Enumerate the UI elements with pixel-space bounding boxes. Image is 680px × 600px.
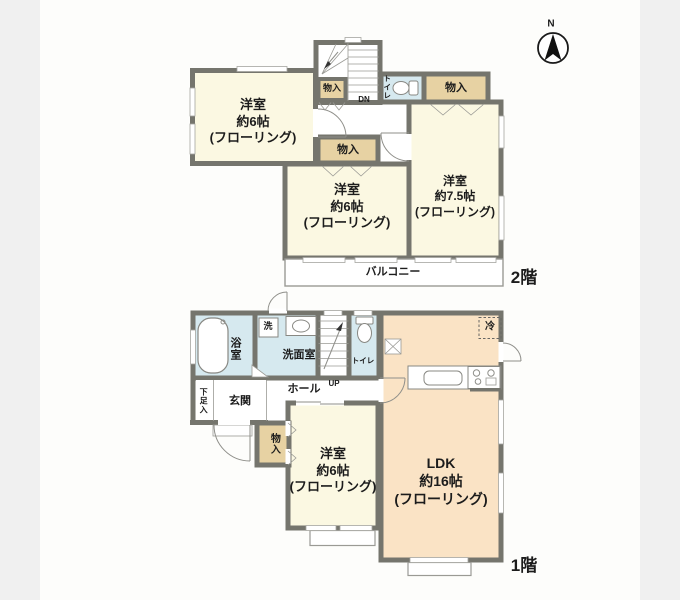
f1-laundry-pan-label: 洗 xyxy=(263,321,272,333)
floor1-plan xyxy=(190,292,521,576)
f2-room-s-label: 洋室 約6帖 (フローリング) xyxy=(304,182,391,232)
f1-hall-label: ホール xyxy=(288,382,321,396)
compass-n-label: N xyxy=(547,19,554,32)
f1-floor-hatch xyxy=(385,339,401,354)
f1-bath-label: 浴室 xyxy=(228,337,242,361)
f2-closet-ne-label: 物入 xyxy=(445,81,467,95)
floorplan-page: N 洋室 約6帖 (フローリング) 洋室 約6帖 (フローリング) 洋室 約7.… xyxy=(0,0,680,600)
f1-fridge-label: 冷 xyxy=(485,322,495,335)
f1-shoe-cabinet-label: 下足入 xyxy=(198,388,208,415)
f2-toilet-label: トイレ xyxy=(382,74,392,100)
f2-dn-label: DN xyxy=(358,95,370,105)
f2-stair-top-window xyxy=(345,38,361,43)
f1-up-label: UP xyxy=(328,379,339,389)
f1-terrace-ldk xyxy=(408,563,471,576)
f1-washroom-label: 洗面室 xyxy=(283,348,316,362)
f1-toilet-fixture xyxy=(356,317,373,343)
f1-entrance-label: 玄関 xyxy=(229,394,251,408)
f1-closet-label: 物入 xyxy=(267,433,280,455)
f1-toilet-label: トイレ xyxy=(352,356,375,366)
floor2-plan xyxy=(190,38,504,287)
f2-room-nw-label: 洋室 約6帖 (フローリング) xyxy=(210,97,297,147)
f1-room-s-label: 洋室 約6帖 (フローリング) xyxy=(290,446,377,496)
f2-closet-mid-label: 物入 xyxy=(337,143,359,157)
f2-toilet-fixture xyxy=(393,81,418,95)
north-compass-icon xyxy=(538,33,568,63)
f2-closet-stair-label: 物入 xyxy=(323,83,341,95)
f1-kitchen-counter xyxy=(408,366,501,392)
f1-terrace-south xyxy=(310,531,375,546)
f2-balcony-label: バルコニー xyxy=(366,265,421,279)
f1-ldk-label: LDK 約16帖 (フローリング) xyxy=(394,455,487,509)
floor1-label: 1階 xyxy=(511,555,537,577)
floor2-label: 2階 xyxy=(511,267,537,289)
f1-entrance-step xyxy=(213,425,252,436)
f2-room-e-label: 洋室 約7.5帖 (フローリング) xyxy=(415,174,495,220)
